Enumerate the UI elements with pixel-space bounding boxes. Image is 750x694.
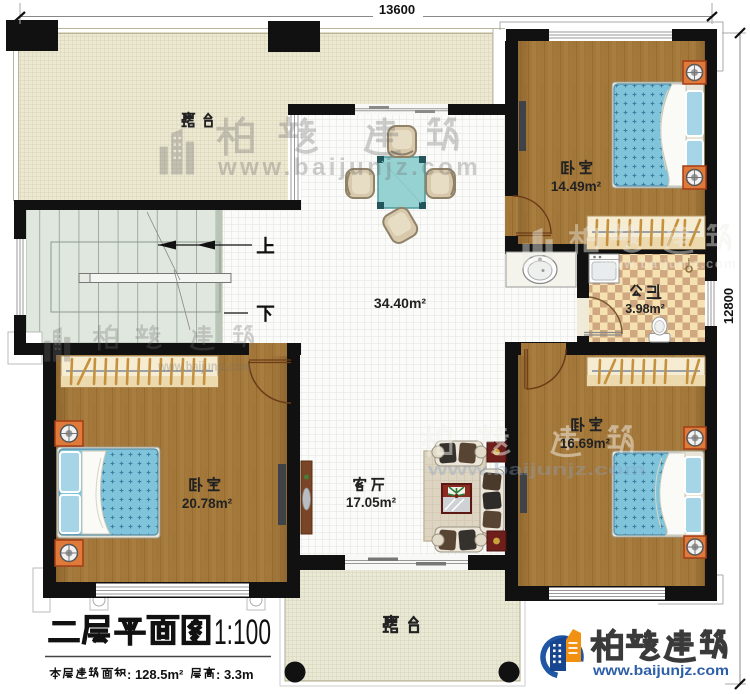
svg-text:3.98m²: 3.98m² xyxy=(625,302,665,316)
svg-text:www.baijunjz.com: www.baijunjz.com xyxy=(600,256,737,271)
svg-text:www.baijunjz.com: www.baijunjz.com xyxy=(427,460,646,479)
svg-text:: 128.5m²: : 128.5m² xyxy=(127,667,184,682)
svg-text:12800: 12800 xyxy=(721,288,736,324)
svg-text:www.baijunjz.com: www.baijunjz.com xyxy=(157,358,251,374)
svg-text:34.40m²: 34.40m² xyxy=(374,295,426,311)
svg-text:www.baijunjz.com: www.baijunjz.com xyxy=(592,663,729,678)
svg-text:www.baijunjz.com: www.baijunjz.com xyxy=(217,154,481,181)
svg-text:1:100: 1:100 xyxy=(214,613,271,652)
svg-text:20.78m²: 20.78m² xyxy=(182,496,233,511)
svg-text:: 3.3m: : 3.3m xyxy=(216,667,254,682)
svg-text:13600: 13600 xyxy=(379,2,415,17)
svg-text:14.49m²: 14.49m² xyxy=(551,179,602,194)
svg-text:17.05m²: 17.05m² xyxy=(346,495,397,510)
svg-text:16.69m²: 16.69m² xyxy=(560,436,611,451)
